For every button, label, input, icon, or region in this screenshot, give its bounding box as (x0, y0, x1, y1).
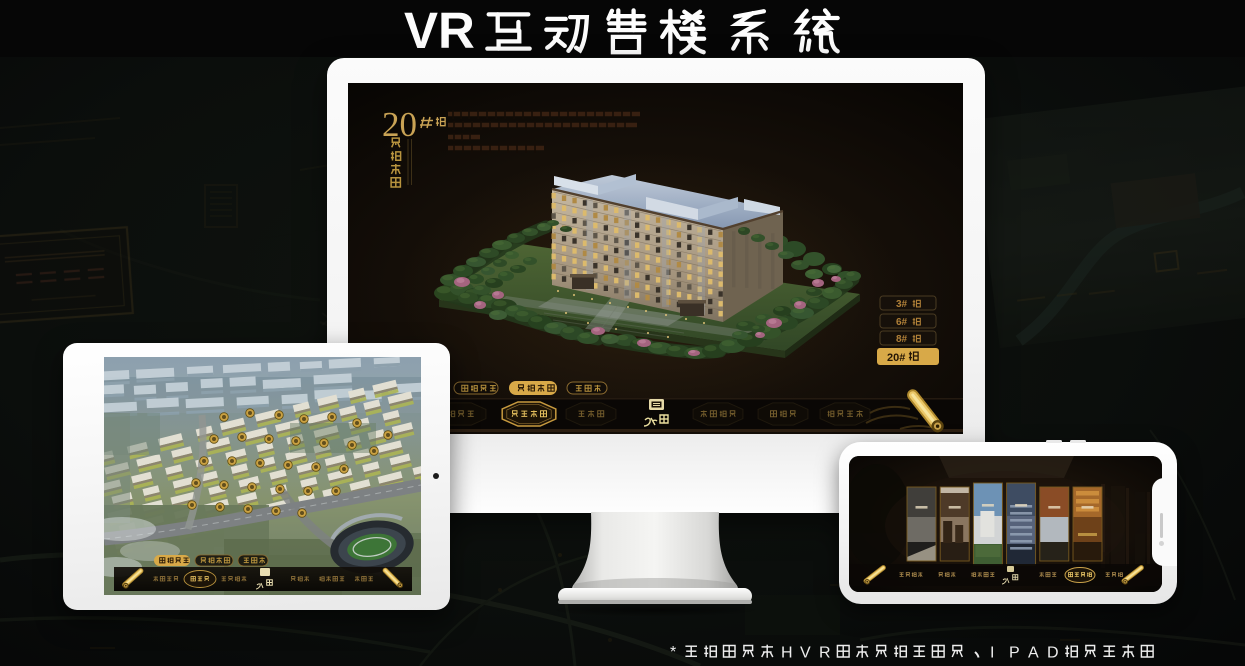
svg-text:R: R (819, 645, 831, 662)
svg-text:H: H (781, 645, 793, 662)
svg-text:8#: 8# (896, 334, 908, 345)
svg-text:I: I (990, 645, 994, 662)
svg-text:A: A (1028, 645, 1039, 662)
svg-text:3#: 3# (896, 299, 908, 310)
svg-text:*: * (670, 644, 676, 661)
svg-text:6#: 6# (896, 317, 908, 328)
svg-text:P: P (1009, 645, 1020, 662)
svg-text:V: V (800, 645, 811, 662)
svg-text:VR: VR (404, 2, 475, 59)
svg-text:D: D (1047, 645, 1059, 662)
svg-text:20#: 20# (887, 352, 905, 364)
